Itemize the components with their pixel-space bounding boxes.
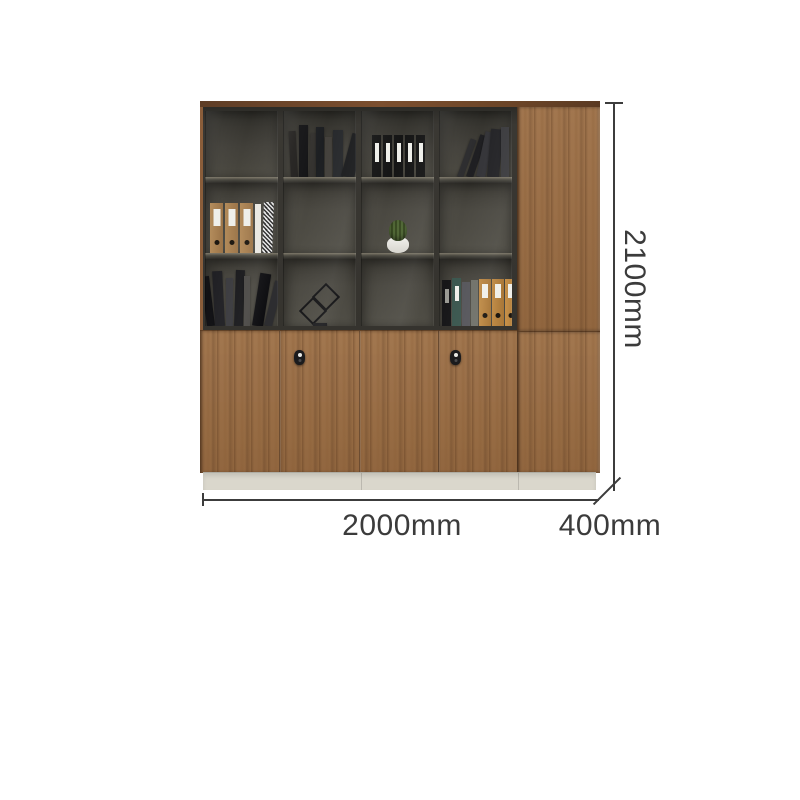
width-dimension-line bbox=[203, 499, 599, 501]
base-plinth bbox=[203, 472, 596, 490]
binder-label bbox=[408, 143, 412, 162]
cell-r2-c4 bbox=[439, 183, 512, 253]
binder-label bbox=[213, 209, 220, 226]
book-spine bbox=[244, 276, 250, 326]
binder-label bbox=[495, 284, 501, 298]
binder-label bbox=[243, 209, 250, 226]
keyhole-lock bbox=[294, 350, 305, 365]
book-spine bbox=[212, 271, 225, 326]
binder bbox=[225, 203, 238, 253]
white-book bbox=[255, 204, 261, 253]
binder bbox=[394, 135, 403, 177]
binder bbox=[383, 135, 392, 177]
binder-label bbox=[445, 289, 449, 303]
book-spine bbox=[501, 127, 509, 177]
book-spine bbox=[316, 127, 324, 177]
binder bbox=[479, 279, 491, 326]
binder bbox=[416, 135, 425, 177]
book-spine bbox=[299, 125, 308, 177]
book-spine bbox=[289, 131, 298, 177]
cell-r1-c1 bbox=[205, 111, 278, 177]
binder bbox=[452, 278, 461, 326]
cell-r2-c1 bbox=[205, 183, 278, 253]
binder-hole bbox=[509, 313, 513, 318]
mixed-binders bbox=[442, 278, 512, 326]
binder-label bbox=[419, 143, 423, 162]
binder bbox=[240, 203, 253, 253]
binder-label bbox=[397, 143, 401, 162]
book-spine bbox=[325, 137, 332, 177]
lower-door-bank bbox=[200, 330, 517, 473]
cell-r3-c4 bbox=[439, 259, 512, 326]
cell-r1-c3 bbox=[361, 111, 434, 177]
checkered-book bbox=[262, 202, 274, 253]
black-binders bbox=[372, 135, 425, 177]
binder bbox=[462, 282, 470, 326]
door-seam bbox=[438, 331, 440, 473]
cell-r2-c3 bbox=[361, 183, 434, 253]
hutch-column-2 bbox=[283, 111, 356, 326]
plinth-seam bbox=[361, 473, 362, 490]
binder-label bbox=[228, 209, 235, 226]
binder-label bbox=[375, 143, 379, 162]
hutch-column-4 bbox=[439, 111, 512, 326]
sculpture-base bbox=[313, 323, 327, 326]
cell-r1-c2 bbox=[283, 111, 356, 177]
depth-dimension-label: 400mm bbox=[559, 509, 662, 543]
kraft-binders bbox=[210, 202, 273, 253]
height-dimension-label: 2100mm bbox=[617, 229, 651, 349]
keyhole-lock bbox=[450, 350, 461, 365]
leaning-book bbox=[341, 133, 356, 177]
binder bbox=[505, 279, 512, 326]
book-spine bbox=[226, 278, 233, 326]
binder bbox=[471, 280, 478, 326]
width-dimension-left-tick bbox=[202, 493, 204, 506]
binder bbox=[372, 135, 381, 177]
side-cabinet-upper-door bbox=[517, 107, 600, 331]
cactus-plant bbox=[389, 220, 407, 241]
door-seam bbox=[279, 331, 281, 473]
cell-r3-c3 bbox=[361, 259, 434, 326]
cell-r3-c1 bbox=[205, 259, 278, 326]
width-dimension-label: 2000mm bbox=[342, 509, 462, 543]
display-hutch bbox=[200, 107, 517, 330]
binder-hole bbox=[483, 313, 488, 318]
height-dimension-line bbox=[613, 103, 615, 491]
side-cabinet-lower-door bbox=[517, 331, 600, 473]
plinth-seam bbox=[518, 473, 519, 490]
binder-label bbox=[455, 286, 459, 301]
cell-r2-c2 bbox=[283, 183, 356, 253]
binder-label bbox=[386, 143, 390, 162]
binder bbox=[210, 203, 223, 253]
door-seam bbox=[359, 331, 361, 473]
binder-hole bbox=[229, 240, 234, 245]
hutch-column-1 bbox=[205, 111, 278, 326]
hutch-column-3 bbox=[361, 111, 434, 326]
cell-r3-c2 bbox=[283, 259, 356, 326]
binder-hole bbox=[496, 313, 501, 318]
product-image: 2100mm 2000mm 400mm bbox=[0, 0, 800, 800]
binder-label bbox=[482, 284, 488, 298]
height-dimension-top-tick bbox=[605, 102, 623, 104]
binder bbox=[442, 280, 451, 326]
binder bbox=[492, 279, 504, 326]
binder-hole bbox=[244, 240, 249, 245]
binder-hole bbox=[214, 240, 219, 245]
cell-r1-c4 bbox=[439, 111, 512, 177]
binder bbox=[405, 135, 414, 177]
binder-label bbox=[508, 284, 512, 298]
